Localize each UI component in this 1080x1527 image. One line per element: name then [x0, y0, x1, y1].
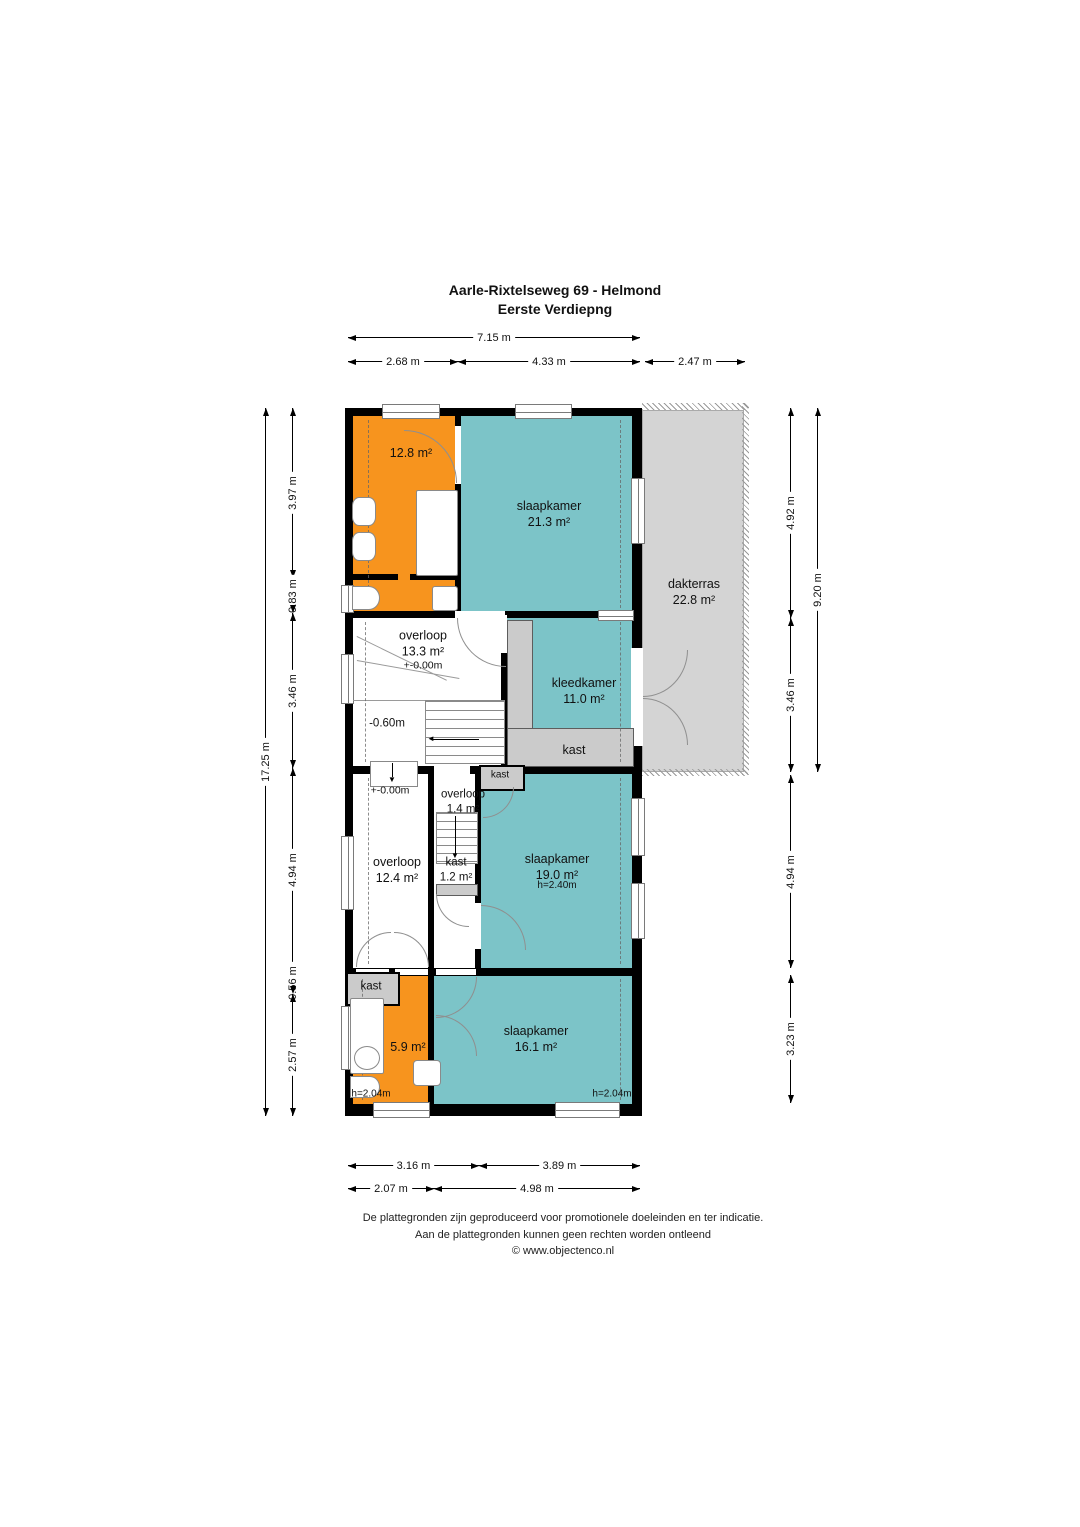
- window-kleedkamer-top: [598, 610, 634, 621]
- door-arc-bath-bottom: [394, 932, 429, 967]
- door-opening-slaapkamer-1: [455, 611, 505, 618]
- dim-bottom-seg4: 4.98 m: [434, 1188, 640, 1189]
- dim-bottom-seg1: 3.16 m: [348, 1165, 479, 1166]
- disclaimer-line2: Aan de plattegronden kunnen geen rechten…: [23, 1227, 1080, 1244]
- window-top-2: [515, 404, 572, 419]
- dim-right-seg2: 3.46 m: [790, 618, 791, 772]
- title-floor: Eerste Verdiepng: [15, 300, 1080, 319]
- floorplan-page: Aarle-Rixtelseweg 69 - Helmond Eerste Ve…: [0, 0, 1080, 1527]
- window-bottom-2: [555, 1102, 620, 1118]
- stairs-landing-line: [353, 700, 425, 701]
- dim-left-seg2: 0.83 m: [292, 578, 293, 613]
- guide-dash: [368, 778, 369, 964]
- dim-bottom-seg3: 2.07 m: [348, 1188, 434, 1189]
- dim-top-seg1: 2.68 m: [348, 361, 458, 362]
- label-overloop-2: overloop 1.4 m²: [441, 787, 485, 816]
- fixture-toilet-top: [352, 586, 380, 610]
- window-right-slaapkamer-2a: [631, 798, 645, 856]
- label-level-zero-2: +-0.00m: [371, 784, 410, 797]
- window-top-1: [382, 404, 440, 419]
- window-right-slaapkamer-2b: [631, 883, 645, 939]
- guide-dash: [365, 622, 366, 762]
- label-height-slaapkamer-3: h=2.04m: [592, 1089, 631, 1102]
- dim-left-seg3: 3.46 m: [292, 613, 293, 768]
- label-slaapkamer-2: slaapkamer 19.0 m² h=2.40m: [525, 851, 590, 893]
- label-slaapkamer-1: slaapkamer 21.3 m²: [517, 498, 582, 530]
- fixture-sink-2: [352, 532, 376, 561]
- dim-left-seg1: 3.97 m: [292, 408, 293, 578]
- dim-left-seg5: 0.56 m: [292, 971, 293, 994]
- door-opening-slaapkamer-3: [436, 969, 476, 975]
- label-bath-bottom: 5.9 m²: [390, 1039, 425, 1055]
- label-bath-top: 12.8 m²: [390, 445, 432, 461]
- label-overloop-3: overloop 12.4 m²: [373, 854, 421, 886]
- stairs-upper: [425, 700, 505, 764]
- fixture-sink-bottom: [354, 1046, 380, 1070]
- window-bottom-1: [373, 1102, 430, 1118]
- guide-dash: [620, 778, 621, 964]
- label-overloop-1: overloop 13.3 m² +-0.00m: [399, 627, 447, 672]
- title-address: Aarle-Rixtelseweg 69 - Helmond: [15, 281, 1080, 300]
- label-kast-mid: kast 1.2 m²: [440, 855, 473, 884]
- dim-bottom-seg2: 3.89 m: [479, 1165, 640, 1166]
- wall-bath-divider-a: [353, 574, 398, 580]
- dakterras-hatch-top: [642, 403, 748, 410]
- label-slaapkamer-3: slaapkamer 16.1 m²: [504, 1023, 569, 1055]
- page-title: Aarle-Rixtelseweg 69 - Helmond Eerste Ve…: [15, 281, 1080, 319]
- fixture-vanity: [416, 490, 458, 576]
- door-arc-overloop-slaapkamer1: [457, 618, 506, 667]
- dim-top-overall: 7.15 m: [348, 337, 640, 338]
- disclaimer: De plattegronden zijn geproduceerd voor …: [23, 1210, 1080, 1260]
- window-left-2: [341, 654, 354, 704]
- dim-top-seg2: 4.33 m: [458, 361, 640, 362]
- wall-interior-v3: [428, 774, 434, 968]
- copyright: © www.objectenco.nl: [23, 1243, 1080, 1260]
- label-height-bath-bottom: h=2.04m: [351, 1089, 390, 1102]
- label-kleedkamer: kleedkamer 11.0 m²: [552, 675, 617, 707]
- dim-left-overall: 17.25 m: [265, 408, 266, 1116]
- stairs-arrow-line-lower: [455, 816, 456, 854]
- dim-right-overall: 9.20 m: [817, 408, 818, 772]
- stairwell-opening: [434, 766, 470, 774]
- dim-right-seg1: 4.92 m: [790, 408, 791, 618]
- label-kast-kleedkamer: kast: [563, 742, 586, 758]
- label-kast-top: kast: [491, 770, 509, 783]
- guide-dash: [620, 622, 621, 762]
- label-kast-bottom: kast: [360, 980, 381, 995]
- fixture-shower-bottom: [413, 1060, 441, 1086]
- dakterras-hatch-bottom: [642, 769, 748, 776]
- dim-right-seg4: 3.23 m: [790, 975, 791, 1103]
- fixture-shower-top: [432, 586, 458, 611]
- label-level-minus: -0.60m: [369, 717, 405, 732]
- arrow-down-icon: ▼: [388, 776, 396, 784]
- arrow-left-icon: ◄: [427, 735, 435, 743]
- dim-left-seg6: 2.57 m: [292, 994, 293, 1116]
- stairs-arrow-line-upper: [433, 739, 479, 740]
- disclaimer-line1: De plattegronden zijn geproduceerd voor …: [23, 1210, 1080, 1227]
- dim-right-seg3: 4.94 m: [790, 775, 791, 968]
- door-arc-stair-landing: [436, 894, 469, 927]
- dim-top-seg3: 2.47 m: [645, 361, 745, 362]
- guide-dash: [620, 420, 621, 608]
- dakterras-hatch-right: [742, 403, 749, 775]
- dim-left-seg4: 4.94 m: [292, 768, 293, 971]
- label-dakterras: dakterras 22.8 m²: [668, 576, 720, 608]
- guide-dash: [620, 979, 621, 1100]
- door-arc-kast-bl: [356, 932, 391, 967]
- fixture-sink-1: [352, 497, 376, 526]
- window-right-slaapkamer-1: [631, 478, 645, 544]
- window-left-3: [341, 836, 354, 910]
